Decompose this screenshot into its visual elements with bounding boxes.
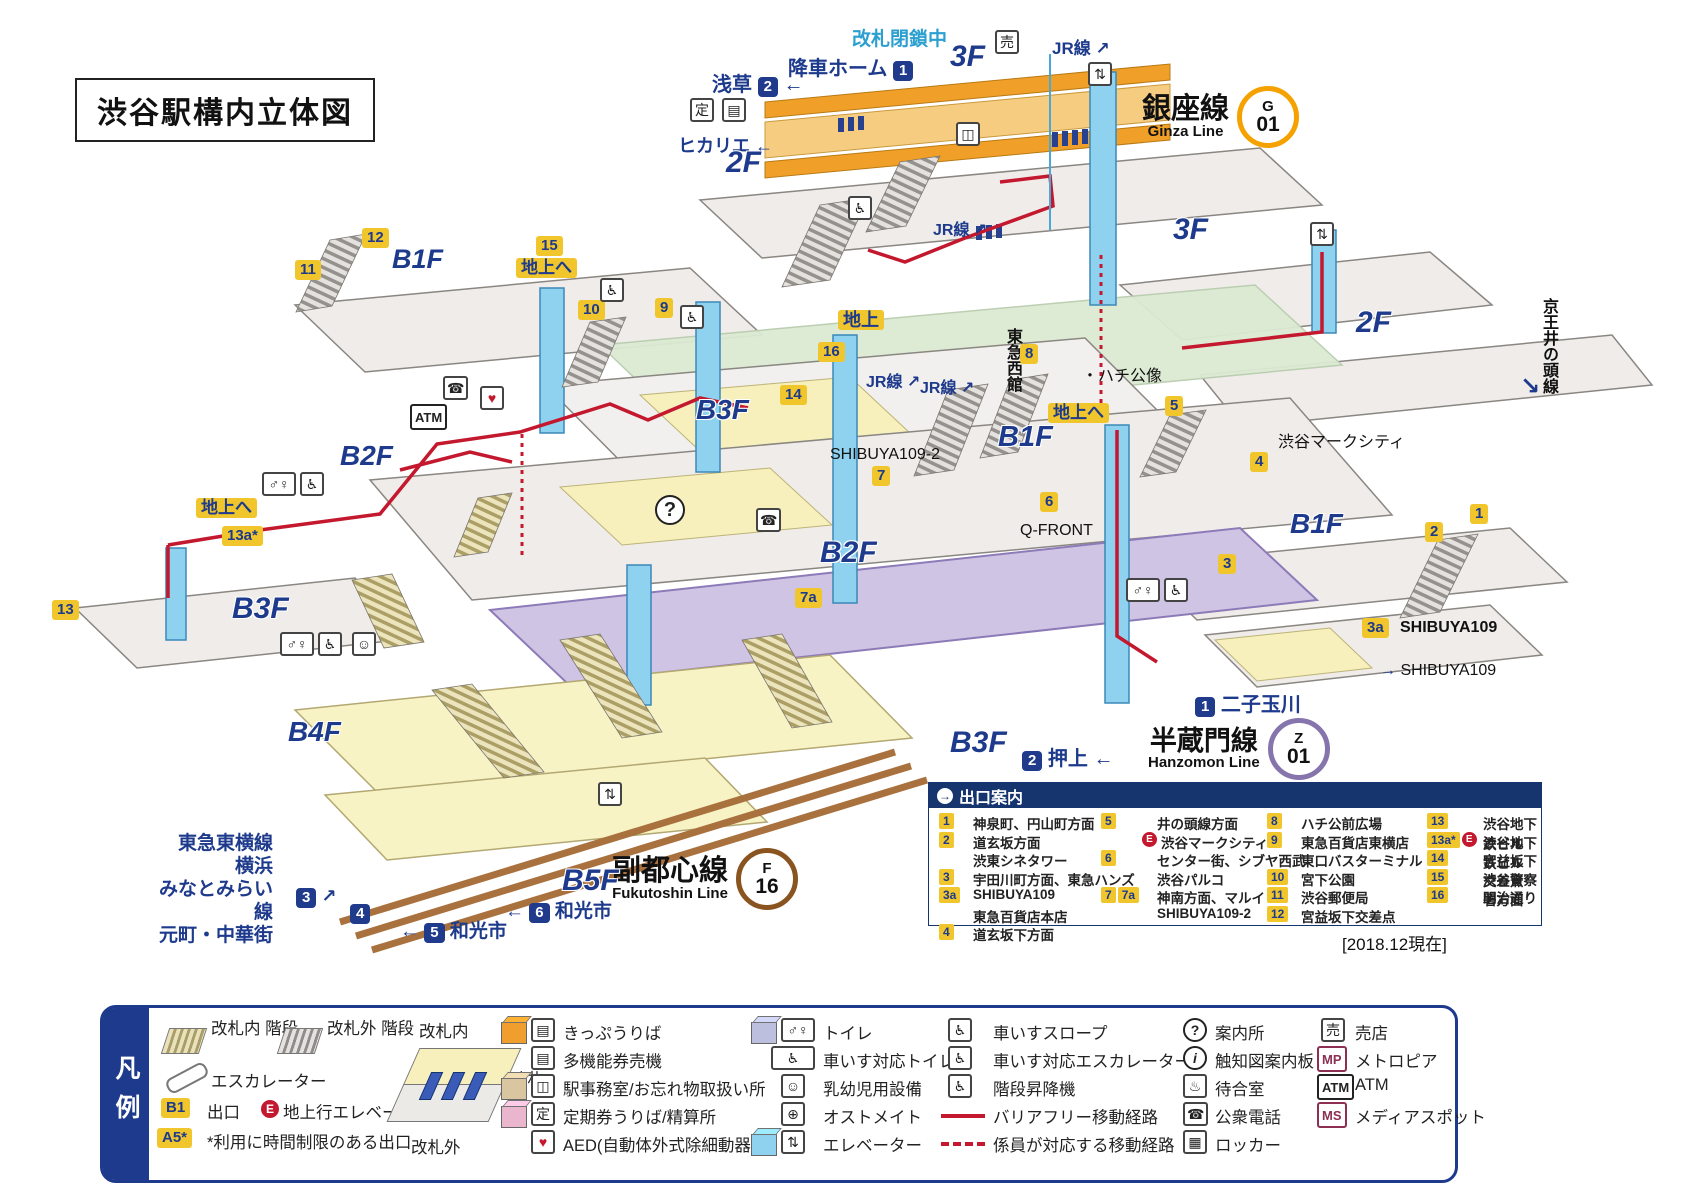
wheelchair-escalator-label: 車いす対応エスカレーター [993,1048,1191,1072]
tactile-map-label: 触知図案内板 [1215,1048,1314,1072]
aed-icon: ♥ [480,386,504,410]
exit-5-badge: 5 [1165,396,1183,416]
elevator-label: エレベーター [823,1132,922,1156]
floor-b3f-left: B3F [232,592,289,626]
exit-row: 10宮下公園 [1267,869,1423,888]
wheelchair-escalator-icon: ♿ [948,1046,972,1070]
shibuya-station-3d-map: 渋谷駅構内立体図 改札閉鎖中 降車ホーム 1 浅草 2 ← 3F 売 JR線 ↗… [0,0,1683,1190]
jr-line-link-mid: JR線 ↗ [933,216,987,240]
wheelchair-icon: ♿ [300,472,324,496]
exit-row: 9東急百貨店東横店 [1267,832,1423,851]
toilet-icon: ♂♀ [781,1018,815,1042]
arrow-right-icon: → [1380,662,1396,679]
multi-ticket-machine-icon: ▤ [531,1046,555,1070]
exit-16-badge: 16 [818,342,845,362]
kiosk-icon: 売 [995,30,1019,54]
arrow-down-right-icon: ↘ [1520,372,1540,401]
legend-panel: 凡例 改札内 階段 改札外 階段 エスカレーター B1 出口 E 地上行エレベー… [100,1005,1458,1183]
hachiko-label: ・ハチ公像 [1082,362,1162,386]
track-2-badge: 2 [1022,751,1042,771]
ticket-office-icon: ▤ [531,1018,555,1042]
ginza-station-code: G 01 [1237,86,1299,148]
floor-b4f: B4F [288,716,341,748]
stair-lift-label: 階段昇降機 [993,1076,1076,1100]
gate-inside-label: 改札内 [419,1018,469,1042]
page-title: 渋谷駅構内立体図 [75,78,375,142]
wheelchair-icon: ♿ [600,278,624,302]
arrow-left-icon: ← [1093,748,1113,770]
wheelchair-icon: ♿ [848,196,872,220]
alighting-platform-label: 降車ホーム 1 [788,52,913,81]
arrow-up-right-icon: ↗ [907,374,920,391]
track-4-label: 4 [350,902,370,924]
floor-3f-right: 3F [1173,213,1208,247]
information-icon: ? [655,495,685,525]
exit-guide-col4: 13渋谷地下鉄ビル 13a*E渋谷地下鉄ビル 14宮益坂下交差点 15渋谷警察署… [1427,813,1541,906]
arrow-up-right-icon: ↗ [974,222,987,239]
hanzomon-line-block: 半蔵門線 Hanzomon Line Z 01 [1148,718,1330,780]
exit-row: 12宮益坂下交差点 [1267,906,1423,925]
exit-4-badge: 4 [1250,452,1268,472]
barrier-free-route-label: バリアフリー移動経路 [993,1104,1158,1128]
pass-office-label: 定期券うりば/精算所 [563,1104,716,1128]
exit-row: 13a*E渋谷地下鉄ビル [1427,832,1541,851]
track-3-label: 3 ↗ [296,886,336,908]
mark-city-label: 渋谷マークシティ [1278,428,1405,452]
qfront-label: Q-FRONT [1020,522,1093,540]
jr-line-link-1: JR線 ↗ [866,368,920,392]
aed-icon: ♥ [531,1130,555,1154]
track-2-badge: 2 [758,77,778,97]
exit-9-badge: 9 [655,298,673,318]
exit-11-badge: 11 [295,260,321,280]
to-ground-badge-3: 地上へ [196,498,257,518]
exit-row: 15渋谷警察署方面 [1427,869,1541,888]
wheelchair-slope-icon: ♿ [948,1018,972,1042]
stairs-outside-icon [277,1028,323,1054]
ground-badge: 地上 [838,310,884,330]
fukutoshin-station-code: F 16 [736,848,798,910]
metropia-label: メトロピア [1355,1048,1438,1072]
exit-guide-panel: → 出口案内 1神泉町、円山町方面 2道玄坂方面 渋東シネタワー 3宇田川町方面… [928,782,1542,926]
accessible-toilet-label: 車いす対応トイレ [823,1048,955,1072]
restroom-icon: ♂♀ [280,632,314,656]
metropia-icon: MP [1317,1046,1347,1072]
floor-2f-left: 2F [726,146,761,180]
limited-exit-badge-sample: A5* [157,1128,192,1148]
restroom-icon: ♂♀ [262,472,296,496]
waiting-room-label: 待合室 [1215,1076,1265,1100]
public-phone-icon: ☎ [1183,1102,1208,1126]
track-1-badge: 1 [1195,697,1215,717]
arrow-left-icon: ← [505,901,524,922]
nursing-icon: ☺ [781,1074,805,1098]
jr-line-link-top: JR線 ↗ [1052,34,1110,59]
exit-7-badge: 7 [872,466,890,486]
to-ground-badge-1: 地上へ [516,258,577,278]
exit-row: 14宮益坂下交差点 [1427,850,1541,869]
exit-2-badge: 2 [1425,522,1443,542]
floor-b3f-upper: B3F [696,394,749,426]
floor-b5f: B5F [562,864,619,898]
exit-arrow-icon: → [937,788,953,804]
floor-b2f-left: B2F [340,440,393,472]
elevator-icon: ⇅ [781,1130,805,1154]
exit-row: 11渋谷郵便局 [1267,887,1423,906]
stairs-inside-icon [161,1028,207,1054]
multi-ticket-machine-label: 多機能券売機 [563,1048,662,1072]
exit-10-badge: 10 [578,300,605,320]
elevator-icon: ⇅ [598,782,622,806]
arrow-up-right-icon: ↗ [321,886,336,906]
exit-row: 16明治通り [1427,887,1541,906]
information-label: 案内所 [1215,1020,1265,1044]
exit-13-badge: 13 [52,600,79,620]
phone-icon: ☎ [756,508,781,532]
shibuya109-2-label: SHIBUYA109-2 [830,446,940,464]
exit-1-badge: 1 [1470,504,1488,524]
exit-label: 出口 [207,1099,240,1123]
stairs-outside-label: 改札外 階段 [327,1020,414,1039]
arrow-left-icon: ← [783,74,803,96]
toyoko-destinations-label: 東急東横線 横浜 みなとみらい線 元町・中華街 [148,832,273,947]
ginza-line-name: 銀座線 [1142,94,1229,124]
ground-elevator-badge: E [1142,832,1157,847]
exit-row: 13渋谷地下鉄ビル [1427,813,1541,832]
phone-icon: ☎ [443,376,468,400]
elevator-icon: ⇅ [1310,222,1334,246]
escalator-icon [164,1061,210,1096]
legend-tab: 凡例 [103,1008,149,1180]
kiosk-icon: 売 [1321,1018,1345,1042]
station-office-cube [501,1078,527,1100]
fukutoshin-line-name: 副都心線 [612,856,728,886]
shibuya109-label-1: SHIBUYA109 [1400,619,1497,637]
nursing-label: 乳幼児用設備 [823,1076,922,1100]
exit-row: 8ハチ公前広場 [1267,813,1423,832]
exit-guide-col3: 8ハチ公前広場 9東急百貨店東横店 東口バスターミナル 10宮下公園 11渋谷郵… [1267,813,1423,924]
exit-6-badge: 6 [1040,492,1058,512]
platform-1-badge: 1 [893,61,913,81]
exit-badge-sample: B1 [161,1098,190,1118]
jr-line-link-2: JR線 ↗ [920,374,974,398]
accessible-toilet-icon: ♿ [771,1046,815,1070]
staff-assist-route-icon [941,1142,985,1146]
wakoshi-6-label: ← 6 和光市 [505,896,612,923]
elevator-icon: ⇅ [1088,62,1112,86]
shibuya109-label-2: → SHIBUYA109 [1380,662,1496,680]
ginza-line-name-en: Ginza Line [1142,124,1229,140]
public-phone-label: 公衆電話 [1215,1104,1281,1128]
gate-closed-label: 改札閉鎖中 [852,24,947,51]
arrow-up-right-icon: ↗ [1095,39,1109,58]
ticket-office-label: きっぷうりば [563,1020,661,1044]
kiosk-label: 売店 [1355,1020,1388,1044]
wheelchair-icon: ♿ [1164,578,1188,602]
exit-7a-badge: 7a [795,588,822,608]
exit-3a-badge: 3a [1362,618,1389,638]
nursing-icon: ☺ [352,632,376,656]
ginza-line-block: 銀座線 Ginza Line G 01 [1142,86,1299,148]
exit-row: 東口バスターミナル [1267,850,1423,869]
escalator-label: エスカレーター [211,1068,327,1092]
ground-elevator-badge: E [1462,832,1477,847]
pass-office-icon: 定 [531,1102,555,1126]
oshiage-direction-label: 2 押上 ← [1022,742,1113,771]
exit-14-badge: 14 [780,385,807,405]
wheelchair-slope-label: 車いすスロープ [993,1020,1108,1044]
floor-b1f-left: B1F [392,244,443,275]
fukutoshin-line-name-en: Fukutoshin Line [612,886,728,902]
pass-office-icon: 定 [690,98,714,122]
stair-lift-icon: ♿ [948,1074,972,1098]
exit-13a-badge: 13a* [222,526,263,546]
media-spot-icon: MS [1317,1102,1347,1128]
staff-assist-route-label: 係員が対応する移動経路 [993,1132,1175,1156]
wakoshi-5-label: ← 5 和光市 [400,916,507,943]
wheelchair-icon: ♿ [318,632,342,656]
barrier-free-route-icon [941,1114,985,1118]
hanzomon-station-code: Z 01 [1268,718,1330,780]
atm-label: ATM [1355,1076,1389,1095]
fukutoshin-line-block: 副都心線 Fukutoshin Line F 16 [612,848,798,910]
floor-b1f-right: B1F [1290,508,1343,540]
wheelchair-icon: ♿ [680,305,704,329]
restroom-icon: ♂♀ [1126,578,1160,602]
exit-3-badge: 3 [1218,554,1236,574]
atm-icon: ATM [1317,1074,1354,1100]
exit-12-badge: 12 [362,228,389,248]
arrow-left-icon: ← [400,921,419,942]
pass-office-cube [501,1106,527,1128]
floor-b3f-bottom: B3F [950,726,1007,760]
as-of-date: [2018.12現在] [1342,930,1447,955]
ticket-office-cube [501,1022,527,1044]
asakusa-direction-label: 浅草 2 ← [712,68,803,97]
to-ground-badge-2: 地上へ [1048,403,1109,423]
locker-icon: ▦ [1183,1130,1207,1154]
toilet-cube [751,1022,777,1044]
floor-3f-top: 3F [950,40,985,74]
gate-outside-label: 改札外 [411,1134,461,1158]
tactile-map-icon: i [1183,1046,1207,1070]
exit-guide-header: → 出口案内 [929,783,1541,808]
ostomate-icon: ⊕ [781,1102,805,1126]
locker-label: ロッカー [1215,1132,1281,1156]
ground-elevator-icon: E [261,1100,279,1118]
toilet-label: トイレ [823,1020,873,1044]
hanzomon-line-name-en: Hanzomon Line [1148,755,1260,771]
ostomate-label: オストメイト [823,1104,922,1128]
aed-label: AED(自動体外式除細動器) [563,1132,756,1156]
information-icon: ? [1183,1018,1207,1042]
floor-2f-right: 2F [1356,306,1391,340]
floor-b1f-mid: B1F [998,421,1053,454]
station-office-icon: ◫ [531,1074,555,1098]
ticket-machine-icon: ▤ [722,98,746,122]
exit-15-badge: 15 [536,236,563,256]
hanzomon-line-name: 半蔵門線 [1148,727,1260,755]
station-office-label: 駅事務室/お忘れ物取扱い所 [563,1076,766,1100]
waiting-room-icon: ♨ [1183,1074,1207,1098]
limited-exit-label: *利用に時間制限のある出口 [207,1129,411,1153]
futako-direction-label: 1 二子玉川 [1195,688,1301,717]
atm-box: ATM [410,404,447,430]
exit-8-badge: 8 [1020,344,1038,364]
exit-row: 4道玄坂下方面 [939,924,1135,943]
station-office-icon: ◫ [956,122,980,146]
elevator-cube [751,1134,777,1156]
floor-b2f-mid: B2F [820,536,877,570]
media-spot-label: メディアスポット [1355,1104,1486,1128]
arrow-up-right-icon: ↗ [961,380,974,397]
